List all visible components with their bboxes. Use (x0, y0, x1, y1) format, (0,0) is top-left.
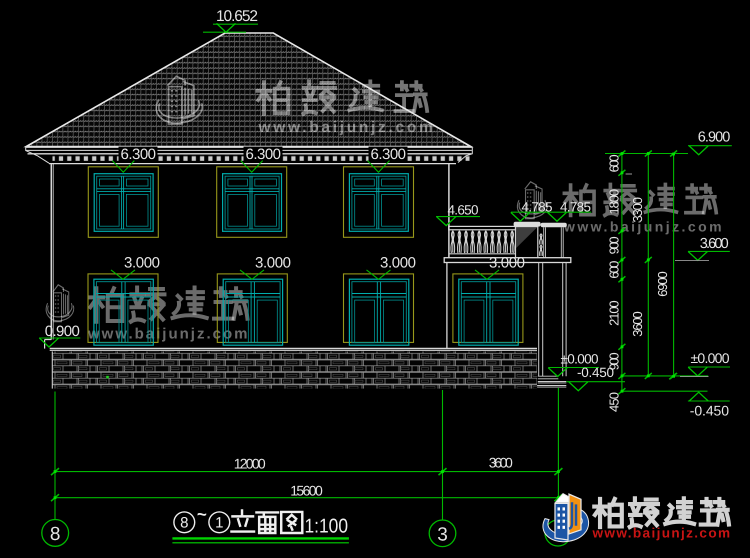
svg-text:3.000: 3.000 (489, 255, 525, 272)
svg-text:3600: 3600 (489, 455, 513, 471)
svg-text:www.baijunjz.com: www.baijunjz.com (258, 119, 436, 136)
svg-text:3.600: 3.600 (700, 236, 729, 252)
svg-text:3600: 3600 (630, 311, 645, 337)
svg-text:3.000: 3.000 (124, 255, 160, 272)
svg-text:3.000: 3.000 (255, 255, 291, 272)
svg-text:12000: 12000 (234, 456, 266, 472)
svg-text:900: 900 (607, 236, 622, 254)
svg-text:6.900: 6.900 (698, 129, 731, 145)
svg-text:6900: 6900 (655, 271, 670, 297)
svg-text:450: 450 (607, 392, 622, 412)
svg-text:6.300: 6.300 (246, 146, 282, 163)
svg-text:3300: 3300 (630, 197, 645, 223)
svg-text:1800: 1800 (607, 189, 622, 215)
svg-text:2100: 2100 (607, 300, 622, 326)
svg-text:3.000: 3.000 (380, 255, 416, 272)
svg-text:600: 600 (607, 261, 622, 279)
svg-text:-0.450: -0.450 (690, 403, 729, 419)
svg-text:3: 3 (437, 524, 448, 545)
svg-text:~: ~ (197, 505, 207, 524)
svg-text:4.785: 4.785 (522, 199, 553, 214)
svg-text:600: 600 (607, 154, 622, 172)
svg-text:4.650: 4.650 (448, 202, 479, 217)
svg-text:4.785: 4.785 (560, 199, 591, 214)
svg-text:0.900: 0.900 (45, 323, 80, 340)
svg-text:8: 8 (180, 515, 188, 532)
svg-text:15600: 15600 (290, 482, 323, 498)
svg-text:www.baijunjz.com: www.baijunjz.com (87, 326, 249, 343)
svg-text:±0.000: ±0.000 (691, 350, 730, 366)
svg-text:6.300: 6.300 (371, 146, 407, 163)
svg-text:6.300: 6.300 (121, 146, 157, 163)
svg-text:8: 8 (50, 524, 61, 545)
svg-text:900: 900 (607, 352, 622, 370)
svg-text:10.652: 10.652 (216, 8, 258, 25)
svg-text:www.baijunjz.com: www.baijunjz.com (592, 526, 732, 541)
svg-text:1:100: 1:100 (305, 516, 349, 538)
svg-text:1: 1 (215, 515, 223, 532)
